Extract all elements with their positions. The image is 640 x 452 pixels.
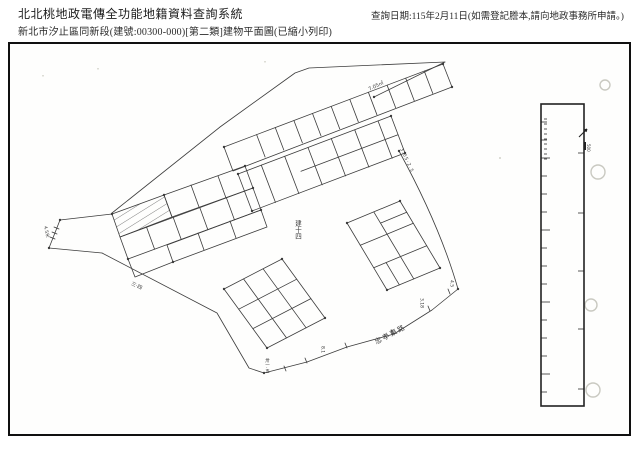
scale-note: 500: [586, 144, 590, 152]
scale-bar: [541, 104, 587, 406]
punch-hole-icon: [585, 80, 610, 397]
dimension-note: 3.18: [418, 298, 423, 308]
dimension-note: 8.1: [319, 346, 324, 353]
row-building-strip-b: [238, 116, 405, 211]
north-arrow-icon: [579, 129, 587, 137]
report-page: 北北桃地政電傳全功能地籍資料查詢系統 新北市汐止區同新段(建號:00300-00…: [0, 0, 640, 452]
bottom-building-block: [224, 259, 325, 348]
query-date-note: 查詢日期:115年2月11日(如需登記謄本,請向地政事務所申請。): [371, 8, 624, 22]
dimension-note: 4.5: [448, 280, 453, 287]
row-building-strip-a: [224, 64, 452, 171]
system-title: 北北桃地政電傳全功能地籍資料查詢系統: [18, 5, 243, 22]
floor-plan-sketch: [10, 44, 628, 433]
document-subtitle: 新北市汐止區同新段(建號:00300-000)[第二類]建物平面圖(已縮小列印): [18, 23, 332, 38]
building-number-label: 建十四: [294, 220, 301, 240]
hatched-unit: [112, 195, 172, 237]
left-building-block: [112, 166, 267, 277]
road-line: [264, 289, 458, 373]
center-building-block: [347, 201, 440, 290]
scan-noise: [42, 61, 501, 159]
plan-frame: 7.05㎡ 3.05·2.5 建十四 三·四 卅一.五 8.1 3.18 4.5…: [8, 42, 631, 436]
dimension-note: 卅一.五: [264, 358, 269, 373]
